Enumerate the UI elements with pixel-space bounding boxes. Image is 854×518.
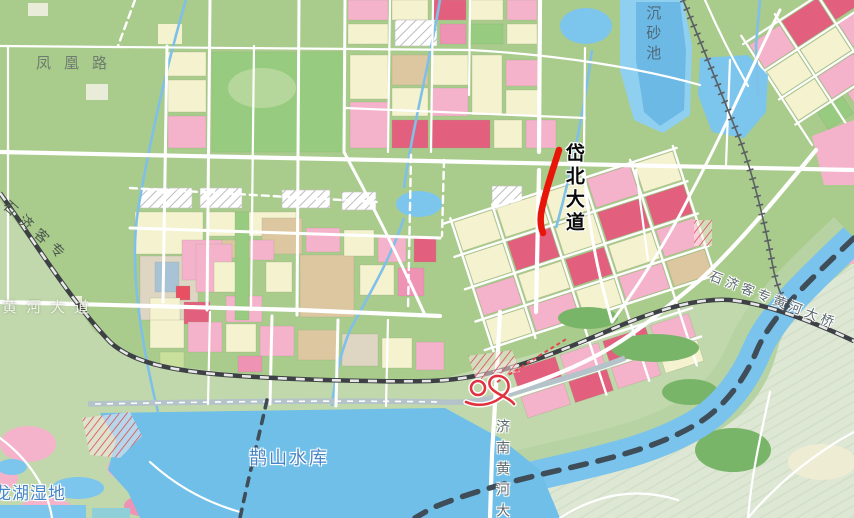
map-canvas[interactable]: 凤凰路 沉砂池 岱北大道 石济客专 黄河大道 鹊山水库 龙湖湿地 济南黄河大 石… [0,0,854,518]
map-graphics [0,0,854,518]
zone-cream-far-south [788,444,854,480]
